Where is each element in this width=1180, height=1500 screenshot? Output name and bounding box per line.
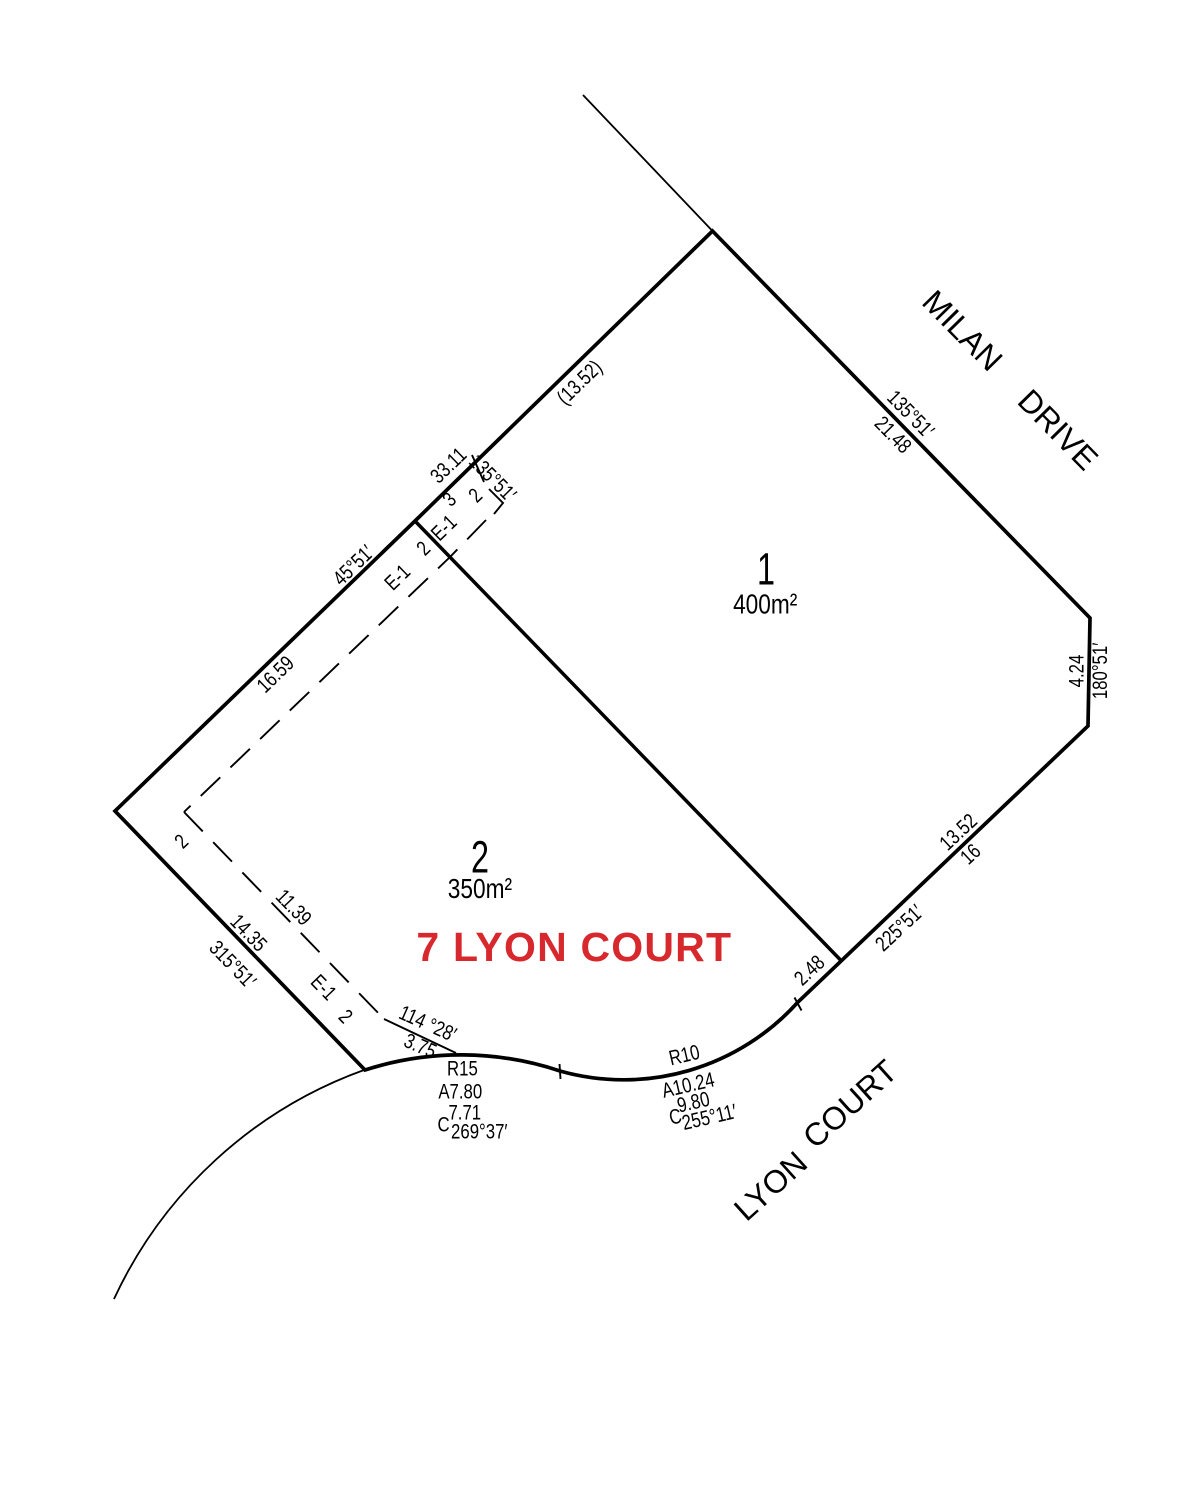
svg-text:A7.80: A7.80 (438, 1081, 482, 1104)
svg-text:7 LYON COURT: 7 LYON COURT (416, 924, 732, 970)
svg-text:400m²: 400m² (733, 589, 797, 620)
svg-text:180°51′: 180°51′ (1089, 642, 1112, 699)
svg-text:4.24: 4.24 (1066, 654, 1089, 687)
svg-text:R15: R15 (447, 1058, 478, 1081)
svg-text:1: 1 (757, 546, 775, 595)
svg-text:350m²: 350m² (448, 874, 512, 905)
svg-text:269°37′: 269°37′ (451, 1121, 508, 1144)
svg-text:C: C (437, 1114, 449, 1137)
